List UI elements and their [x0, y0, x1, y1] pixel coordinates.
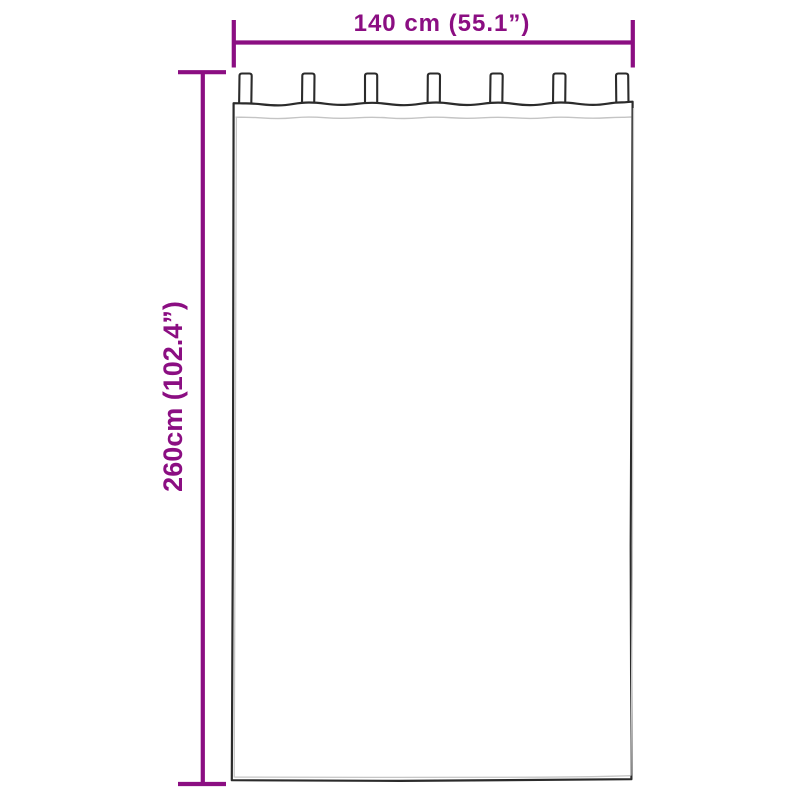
svg-text:140 cm (55.1”): 140 cm (55.1”) [354, 10, 531, 37]
svg-text:260cm (102.4”): 260cm (102.4”) [158, 301, 188, 492]
